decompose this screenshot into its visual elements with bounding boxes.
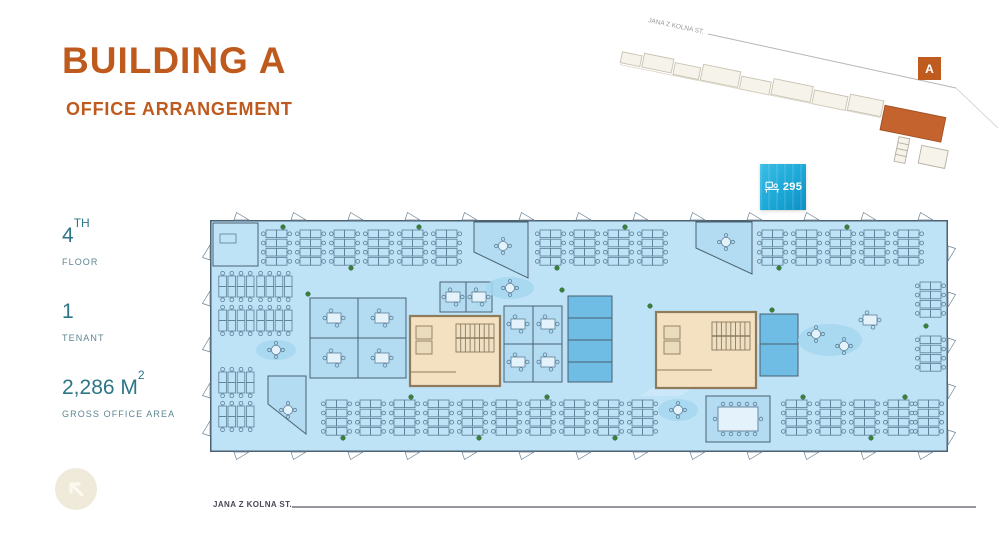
stat-tenant-label: TENANT <box>62 333 222 343</box>
stat-area-value: 2,286 M2 <box>62 370 222 400</box>
stat-area: 2,286 M2 GROSS OFFICE AREA <box>62 370 222 419</box>
site-minimap: JANA Z KOLNA ST. A <box>600 0 1000 160</box>
workstation-count: 295 <box>783 181 802 193</box>
stat-tenant: 1 TENANT <box>62 294 222 343</box>
building-a-marker: A <box>918 57 941 80</box>
minimap-street-label: JANA Z KOLNA ST. <box>648 17 705 36</box>
stat-tenant-value: 1 <box>62 294 222 324</box>
stat-floor: 4TH FLOOR <box>62 218 222 267</box>
building-a-marker-label: A <box>925 62 934 76</box>
stat-floor-value: 4TH <box>62 218 222 248</box>
plan-toilets <box>568 296 612 382</box>
workstation-count-badge: 295 <box>760 164 806 210</box>
plan-core-west <box>410 316 500 386</box>
minimap-building-a <box>880 105 946 142</box>
stats-panel: 4TH FLOOR 1 TENANT 2,286 M2 GROSS OFFICE… <box>62 218 222 446</box>
arrow-up-left-icon <box>65 478 87 500</box>
plan-core-east <box>656 312 756 388</box>
plan-conference-table <box>713 402 763 436</box>
floor-plan <box>210 220 948 452</box>
stat-area-label: GROSS OFFICE AREA <box>62 409 222 419</box>
logo-back-button[interactable] <box>55 468 97 510</box>
workstation-icon <box>764 179 780 195</box>
page-title: BUILDING A <box>62 40 286 82</box>
minimap-buildings <box>612 48 956 171</box>
slide: BUILDING A OFFICE ARRANGEMENT 4TH FLOOR … <box>0 0 1000 560</box>
page-subtitle: OFFICE ARRANGEMENT <box>66 99 293 120</box>
stat-floor-label: FLOOR <box>62 257 222 267</box>
street-label: JANA Z KOLNA ST. <box>213 500 292 509</box>
street-line <box>292 506 976 508</box>
